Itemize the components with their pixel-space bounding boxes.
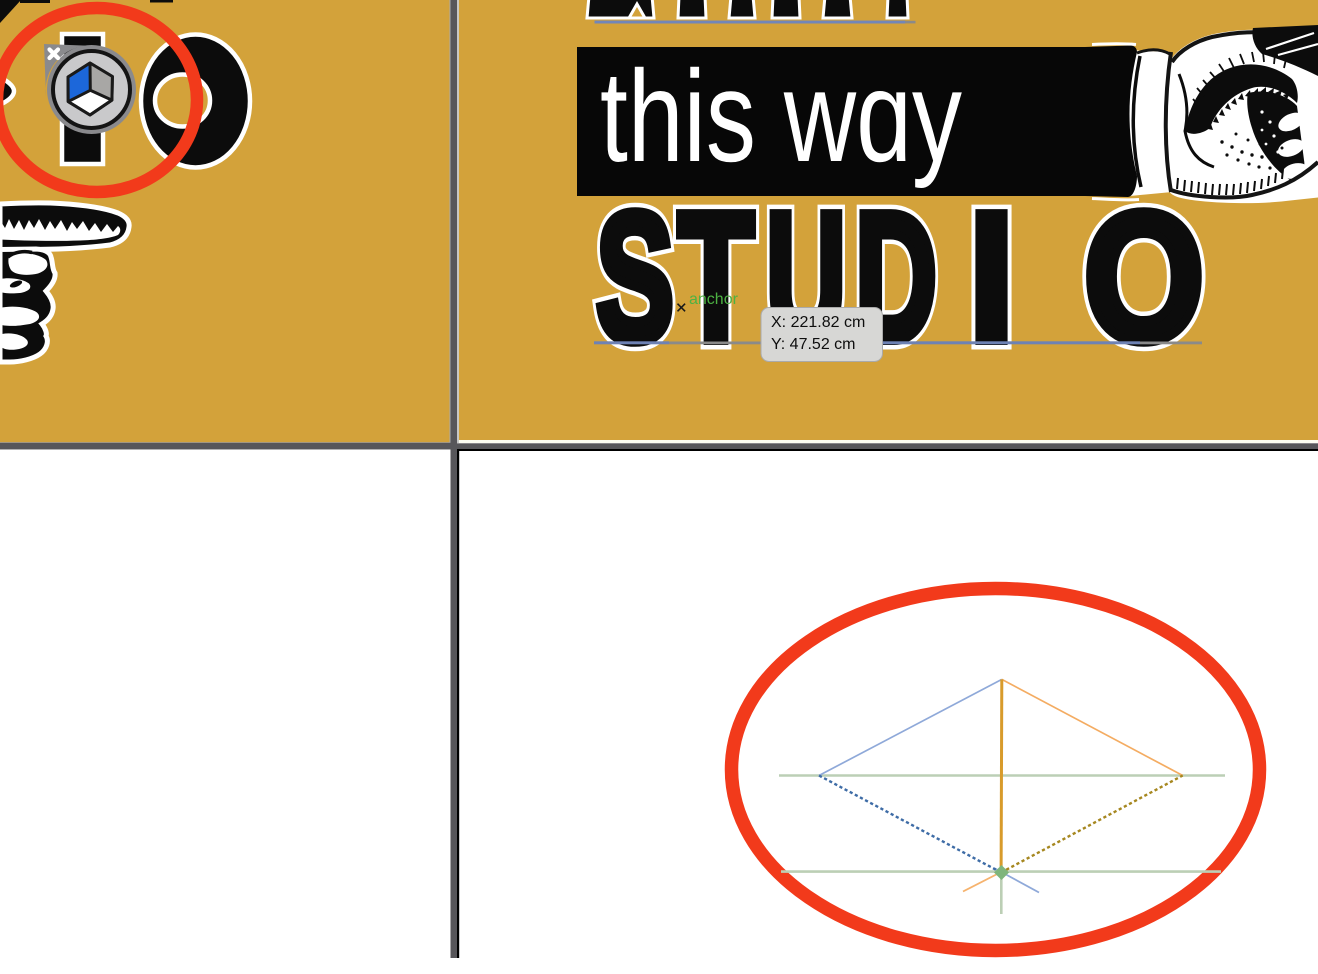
svg-text:S: S bbox=[596, 174, 674, 379]
svg-text:this wɑy: this wɑy bbox=[600, 43, 962, 189]
svg-text:anchor: anchor bbox=[689, 291, 739, 308]
svg-text:Y: 47.52 cm: Y: 47.52 cm bbox=[771, 336, 856, 353]
svg-text:O: O bbox=[1084, 174, 1204, 379]
svg-text:T: T bbox=[678, 174, 754, 379]
svg-text:I: I bbox=[969, 174, 1014, 379]
svg-text:X: 221.82 cm: X: 221.82 cm bbox=[771, 314, 865, 331]
